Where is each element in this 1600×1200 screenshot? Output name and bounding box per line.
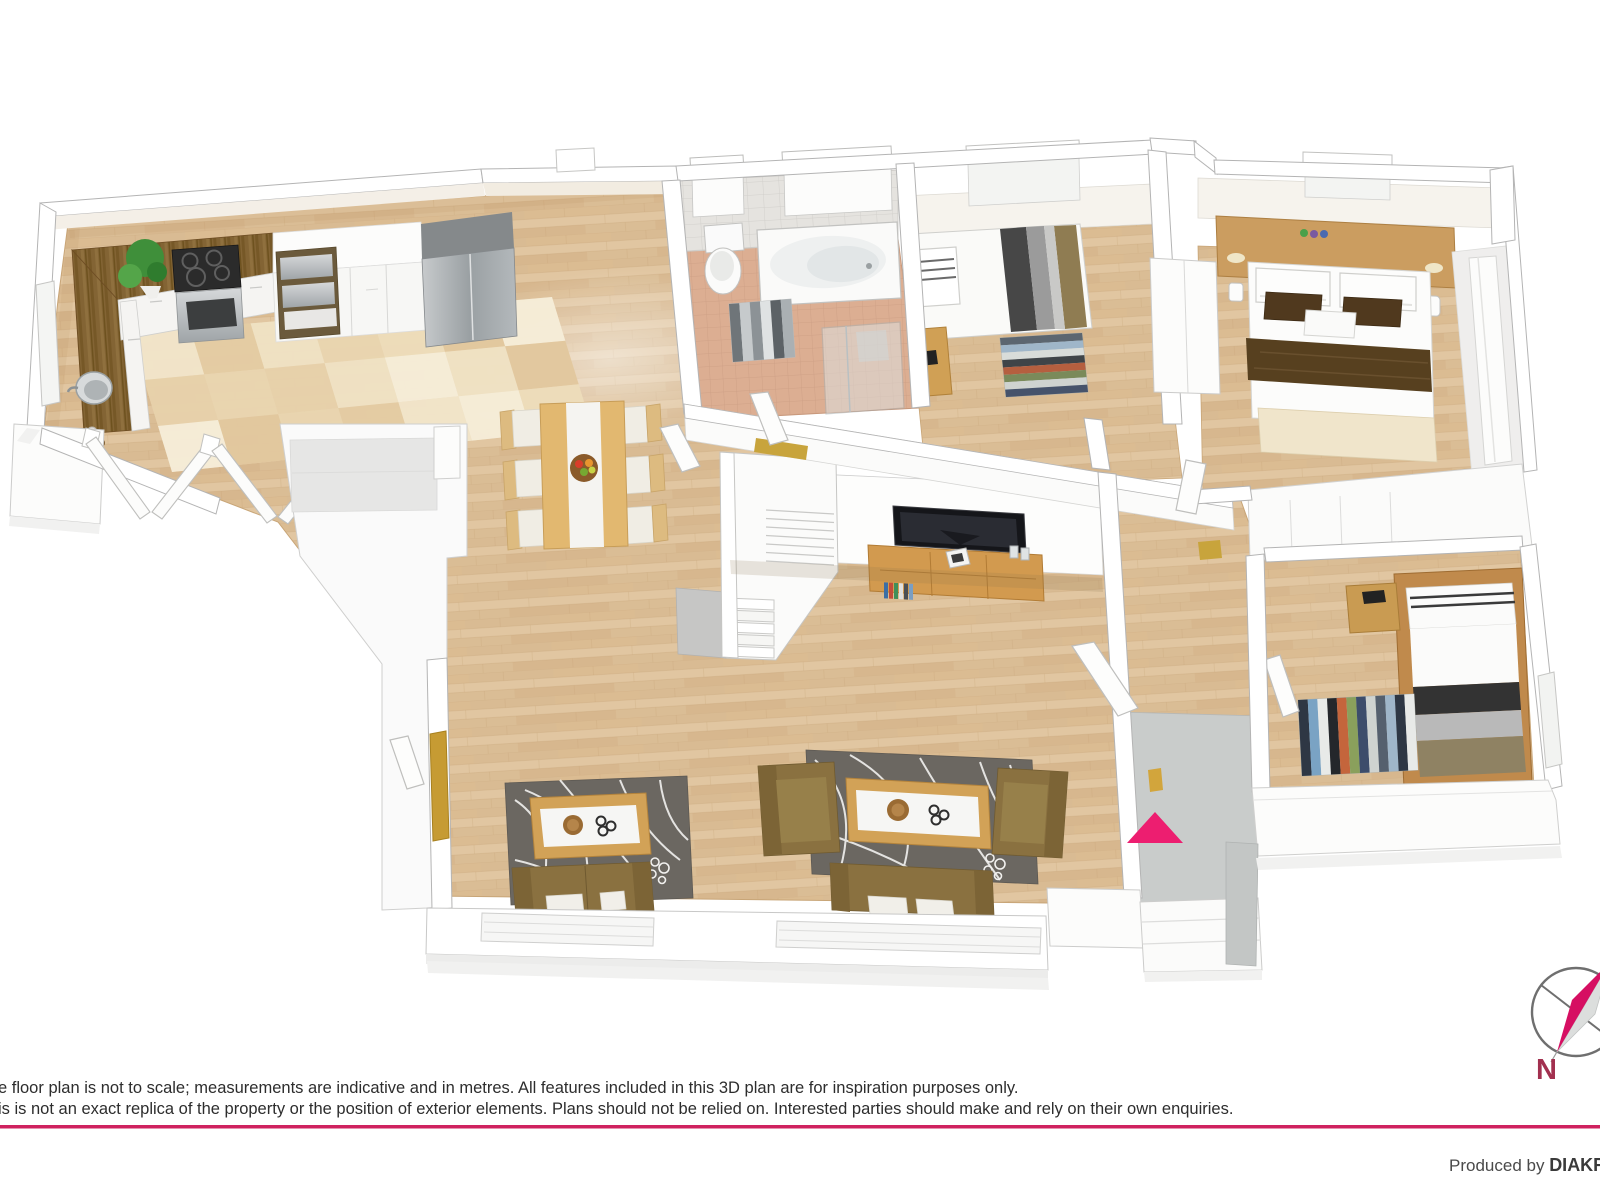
svg-text:e floor plan is not to scale;: e floor plan is not to scale; measuremen… bbox=[0, 1079, 1019, 1097]
svg-text:Produced by DIAKRIT: Produced by DIAKRIT bbox=[1449, 1155, 1600, 1175]
svg-text:is is not an exact replica of: is is not an exact replica of the proper… bbox=[0, 1100, 1233, 1118]
svg-text:N: N bbox=[1536, 1054, 1557, 1086]
